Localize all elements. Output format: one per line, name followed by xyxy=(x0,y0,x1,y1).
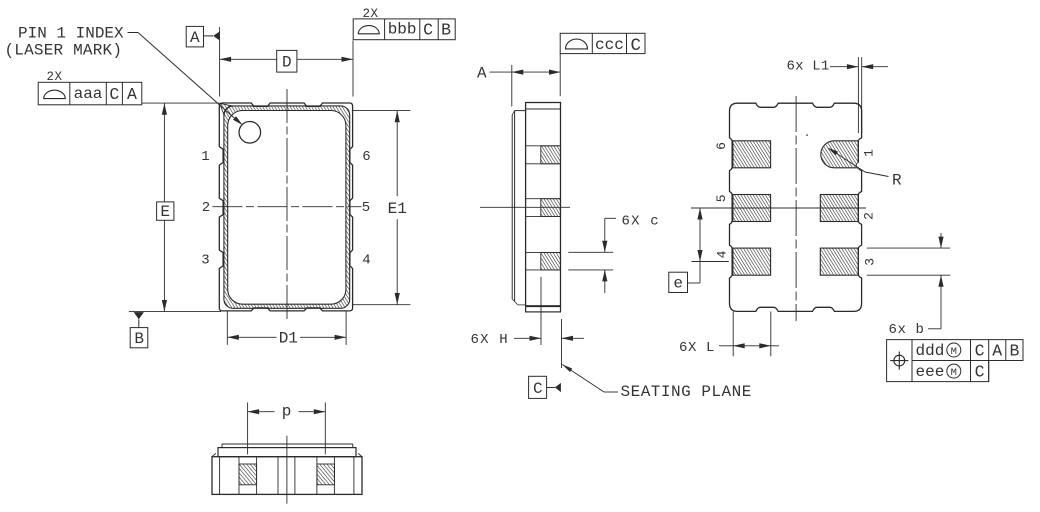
svg-text:3: 3 xyxy=(863,258,878,266)
svg-text:1: 1 xyxy=(862,149,877,157)
svg-text:6X c: 6X c xyxy=(622,214,660,230)
svg-text:2: 2 xyxy=(202,200,210,216)
svg-text:5: 5 xyxy=(714,194,729,202)
svg-text:1: 1 xyxy=(201,149,209,165)
svg-text:D1: D1 xyxy=(279,330,298,348)
svg-text:bbb: bbb xyxy=(388,20,417,38)
svg-text:A: A xyxy=(190,29,200,47)
svg-text:C: C xyxy=(631,36,642,56)
svg-text:PIN 1 INDEX: PIN 1 INDEX xyxy=(18,25,124,43)
svg-text:M: M xyxy=(951,367,957,379)
svg-text:C: C xyxy=(423,20,433,39)
svg-text:6: 6 xyxy=(362,149,370,165)
svg-text:6X H: 6X H xyxy=(471,332,509,348)
svg-text:e: e xyxy=(673,275,683,293)
svg-text:6x L1: 6x L1 xyxy=(787,58,830,74)
svg-text:C: C xyxy=(975,341,985,360)
svg-text:6X L: 6X L xyxy=(679,340,715,356)
svg-text:A: A xyxy=(992,341,1002,360)
svg-text:6x b: 6x b xyxy=(889,322,925,338)
svg-text:4: 4 xyxy=(362,253,370,269)
svg-text:(LASER MARK): (LASER MARK) xyxy=(5,42,123,60)
svg-text:ddd: ddd xyxy=(916,342,945,360)
svg-text:D: D xyxy=(282,53,292,71)
svg-text:3: 3 xyxy=(201,253,209,269)
svg-text:2: 2 xyxy=(862,212,877,220)
svg-text:6: 6 xyxy=(714,142,729,150)
svg-text:SEATING PLANE: SEATING PLANE xyxy=(621,383,752,401)
svg-text:R: R xyxy=(892,172,902,190)
svg-text:B: B xyxy=(1009,341,1019,360)
svg-text:A: A xyxy=(477,65,487,83)
svg-text:5: 5 xyxy=(362,200,370,216)
svg-text:E: E xyxy=(160,203,170,221)
svg-text:C: C xyxy=(533,380,543,398)
svg-text:ccc: ccc xyxy=(595,36,624,54)
svg-text:C: C xyxy=(109,85,119,104)
svg-text:M: M xyxy=(951,346,957,358)
svg-text:p: p xyxy=(282,402,292,420)
svg-text:aaa: aaa xyxy=(74,85,103,103)
svg-text:A: A xyxy=(127,85,137,104)
svg-text:C: C xyxy=(975,363,985,382)
svg-text:E1: E1 xyxy=(388,200,407,218)
svg-text:B: B xyxy=(441,20,451,39)
svg-text:4: 4 xyxy=(715,250,730,258)
svg-text:eee: eee xyxy=(916,363,945,381)
svg-text:B: B xyxy=(134,330,144,348)
